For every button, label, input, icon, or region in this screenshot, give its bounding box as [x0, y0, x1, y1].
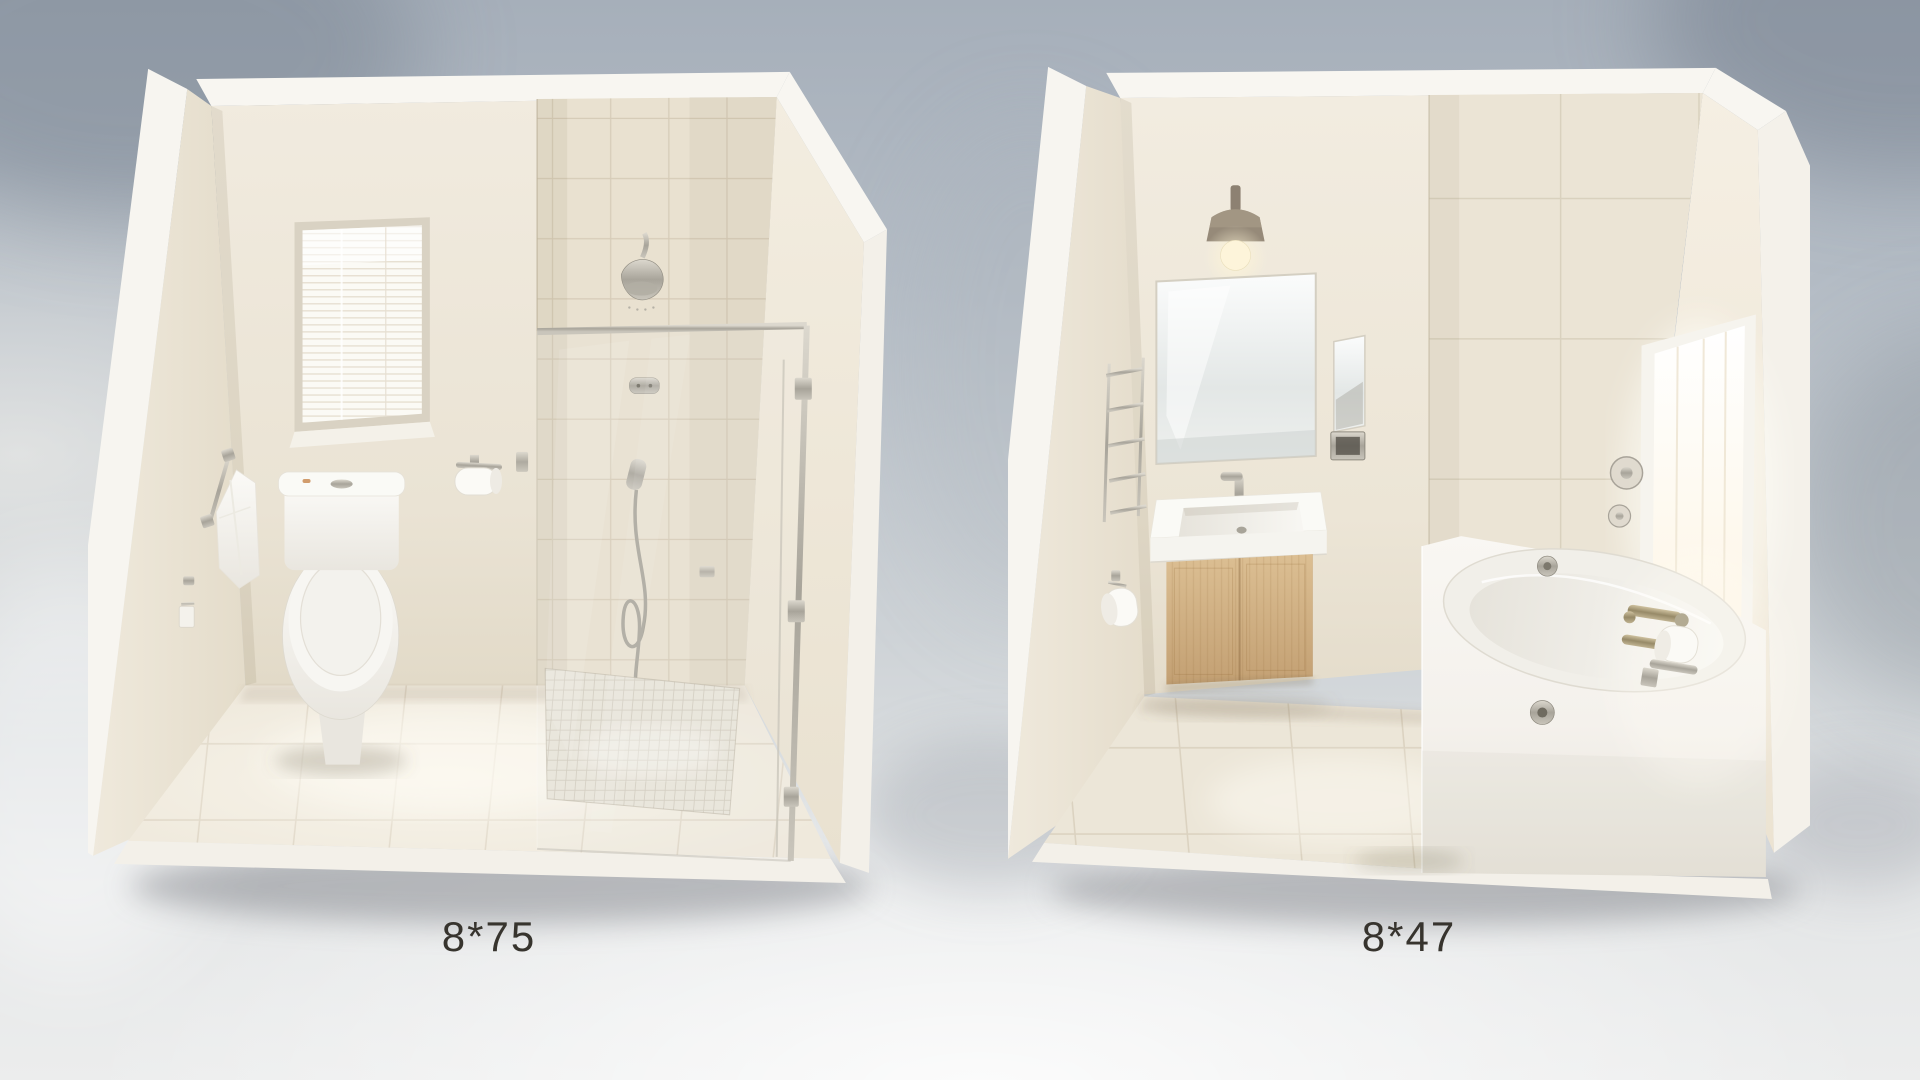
side-mirror	[1334, 336, 1365, 432]
wall-top-edge	[1106, 68, 1716, 98]
shower-glass-enclosure	[537, 326, 812, 861]
recessed-wall-box	[1331, 432, 1365, 460]
window-blinds	[290, 217, 435, 448]
room-label-left: 8*75	[88, 906, 890, 968]
vanity-mirror	[1156, 273, 1315, 463]
bathroom-render-right	[1008, 58, 1810, 942]
vanity-sink	[1150, 492, 1326, 562]
vanity-cabinet	[1147, 554, 1331, 719]
bathroom-render-left	[88, 58, 890, 942]
bathroom-right-svg	[1008, 58, 1810, 942]
room-label-right: 8*47	[1008, 906, 1810, 968]
bathroom-left-svg	[88, 58, 890, 942]
